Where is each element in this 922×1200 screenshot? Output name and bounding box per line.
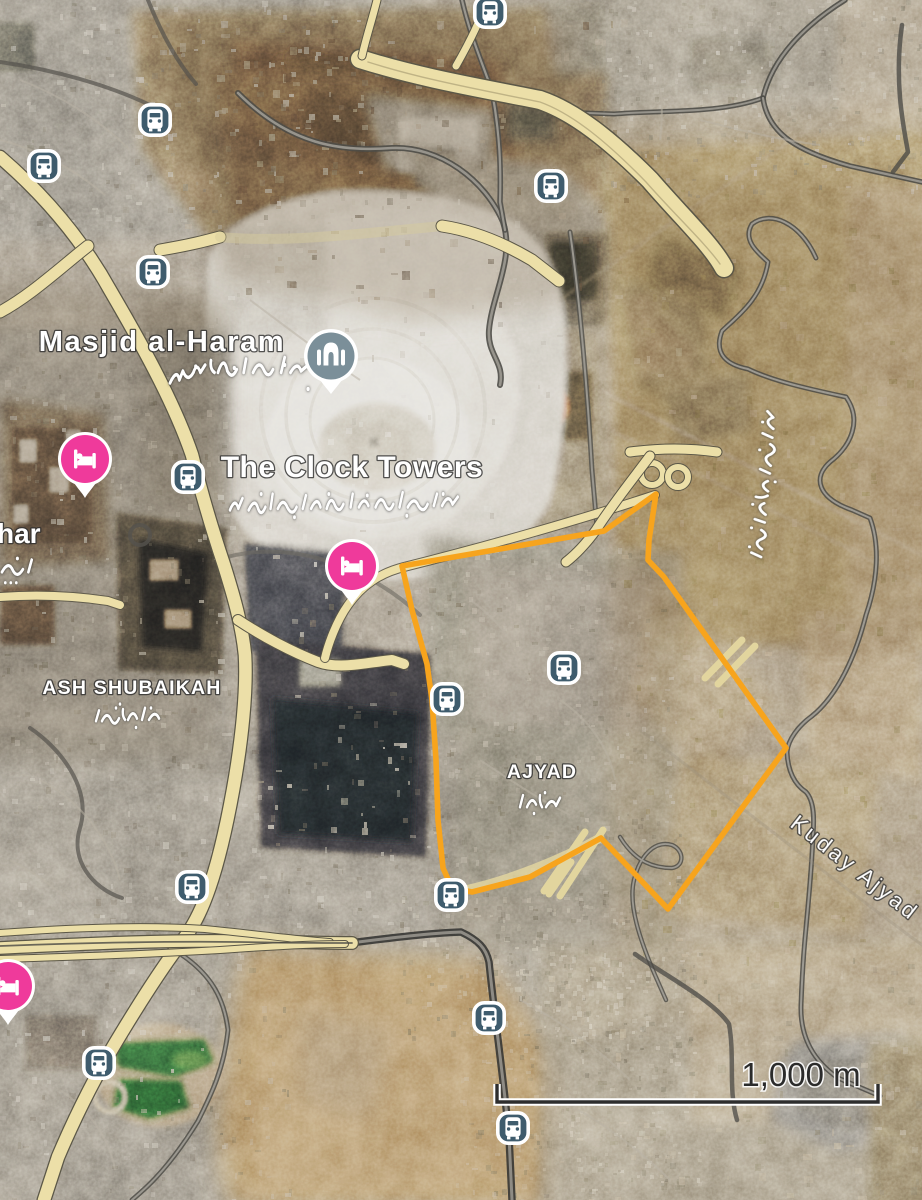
svg-text:Masjid al-Haram: Masjid al-Haram: [39, 326, 285, 358]
svg-text:ASH SHUBAIKAH: ASH SHUBAIKAH: [42, 677, 221, 699]
svg-text:AJYAD: AJYAD: [507, 761, 577, 783]
svg-text:The Clock Towers: The Clock Towers: [221, 451, 484, 484]
svg-text:har: har: [0, 518, 41, 549]
svg-text:1,000 m: 1,000 m: [741, 1056, 860, 1093]
